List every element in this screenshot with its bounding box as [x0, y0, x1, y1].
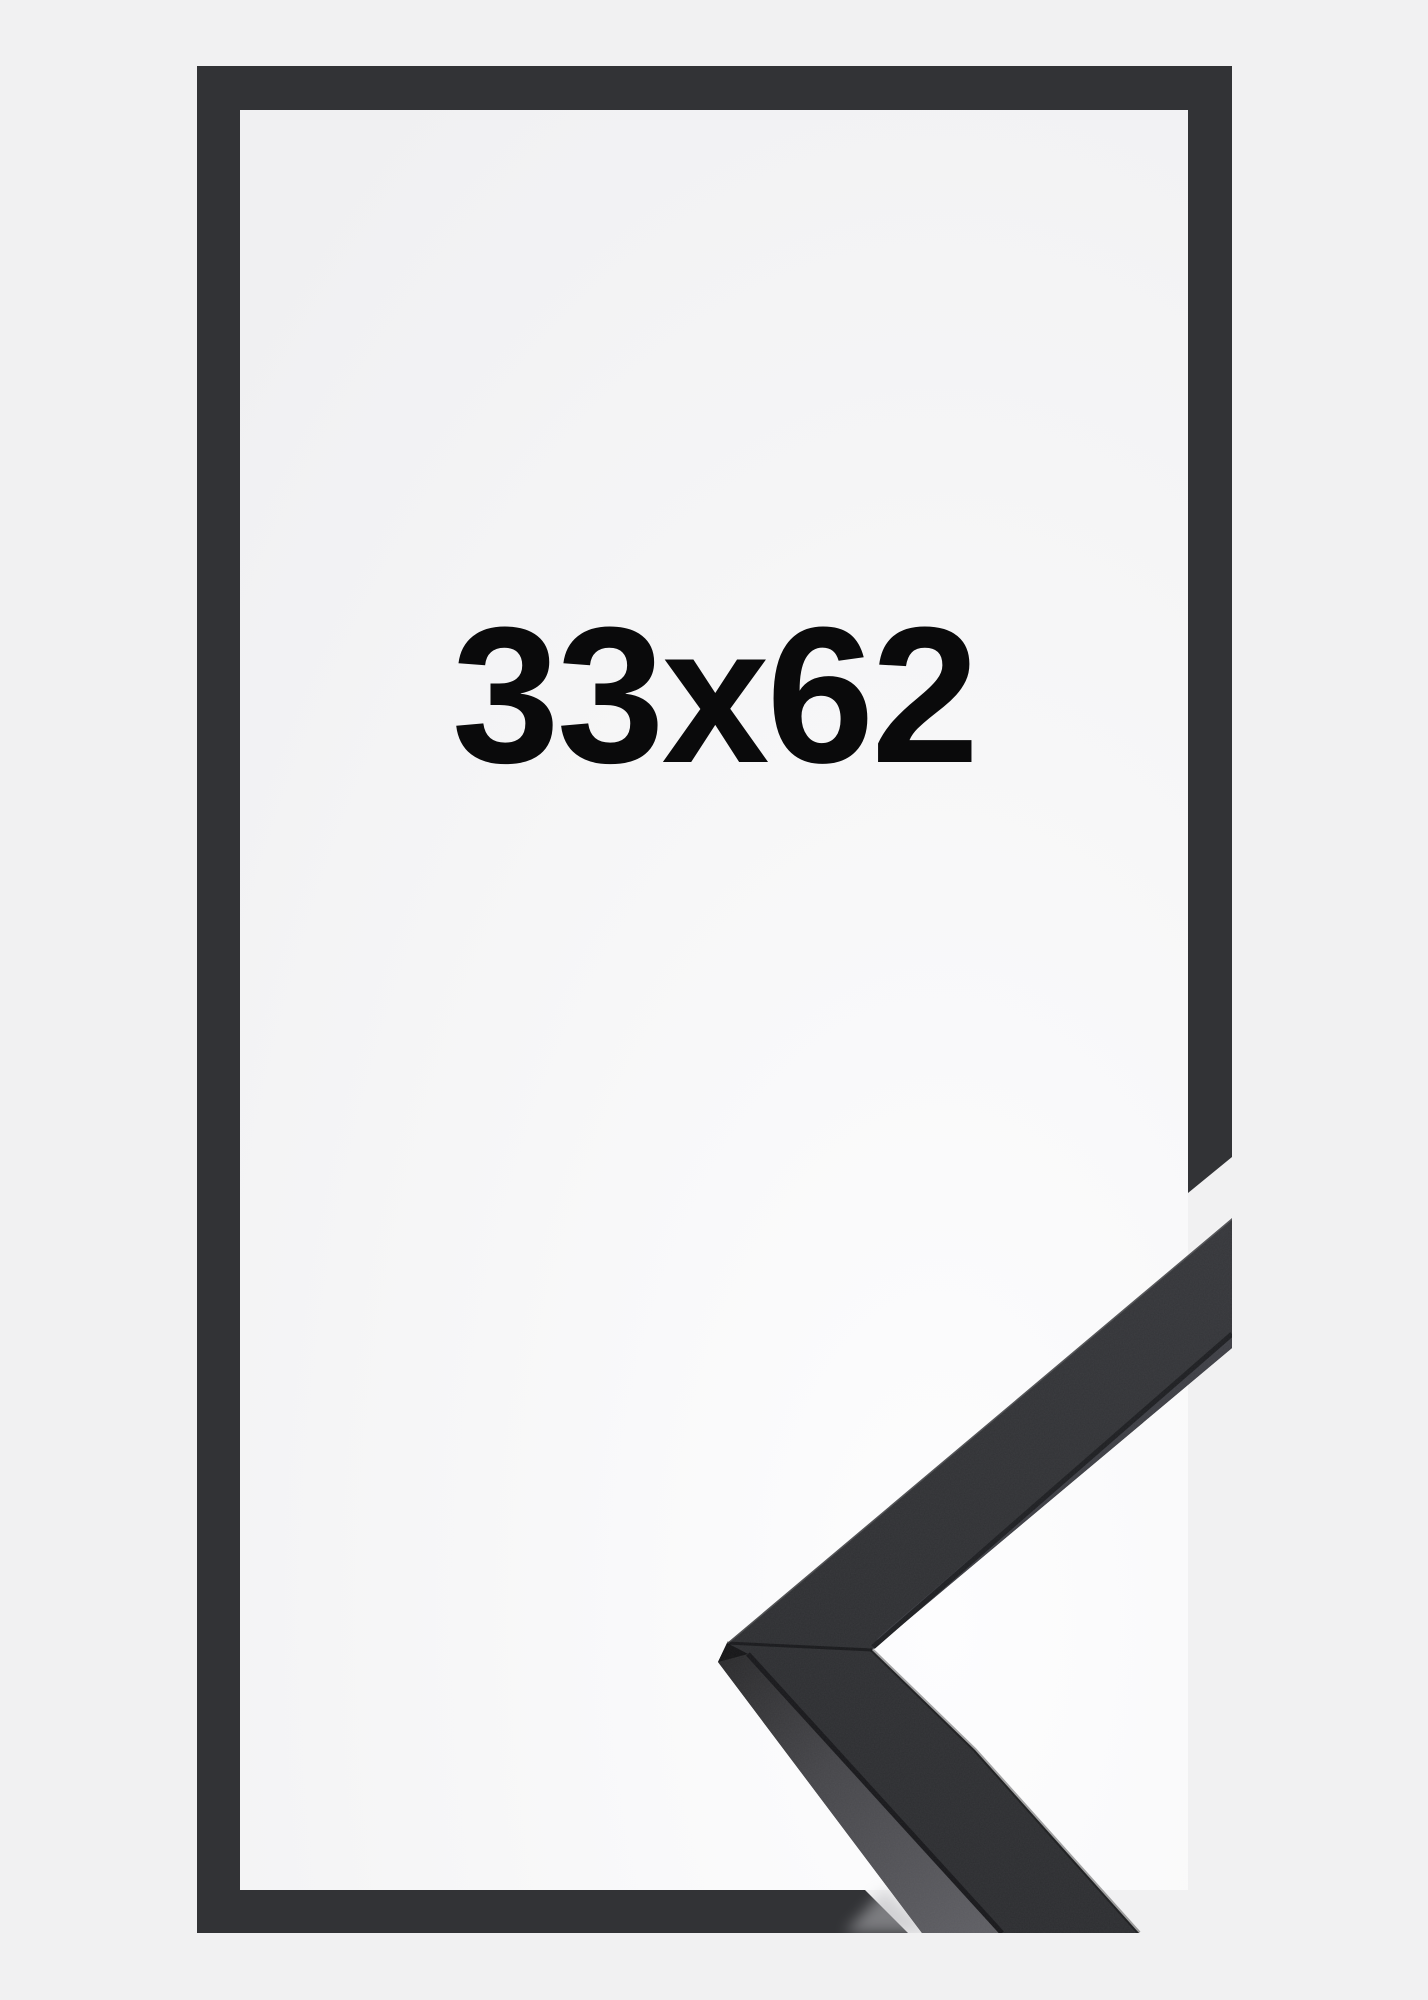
frame-outline-bottom-band [197, 1890, 908, 1933]
product-image: 33x62 [0, 0, 1428, 2000]
frame-outline-right-band [1188, 66, 1232, 1193]
frame-outline-left-band [197, 66, 240, 1933]
frame-inner-backing [240, 110, 1188, 1890]
frame-outline-top-band [197, 66, 1232, 110]
frame-graphic [0, 0, 1428, 2000]
size-label: 33x62 [240, 599, 1188, 793]
